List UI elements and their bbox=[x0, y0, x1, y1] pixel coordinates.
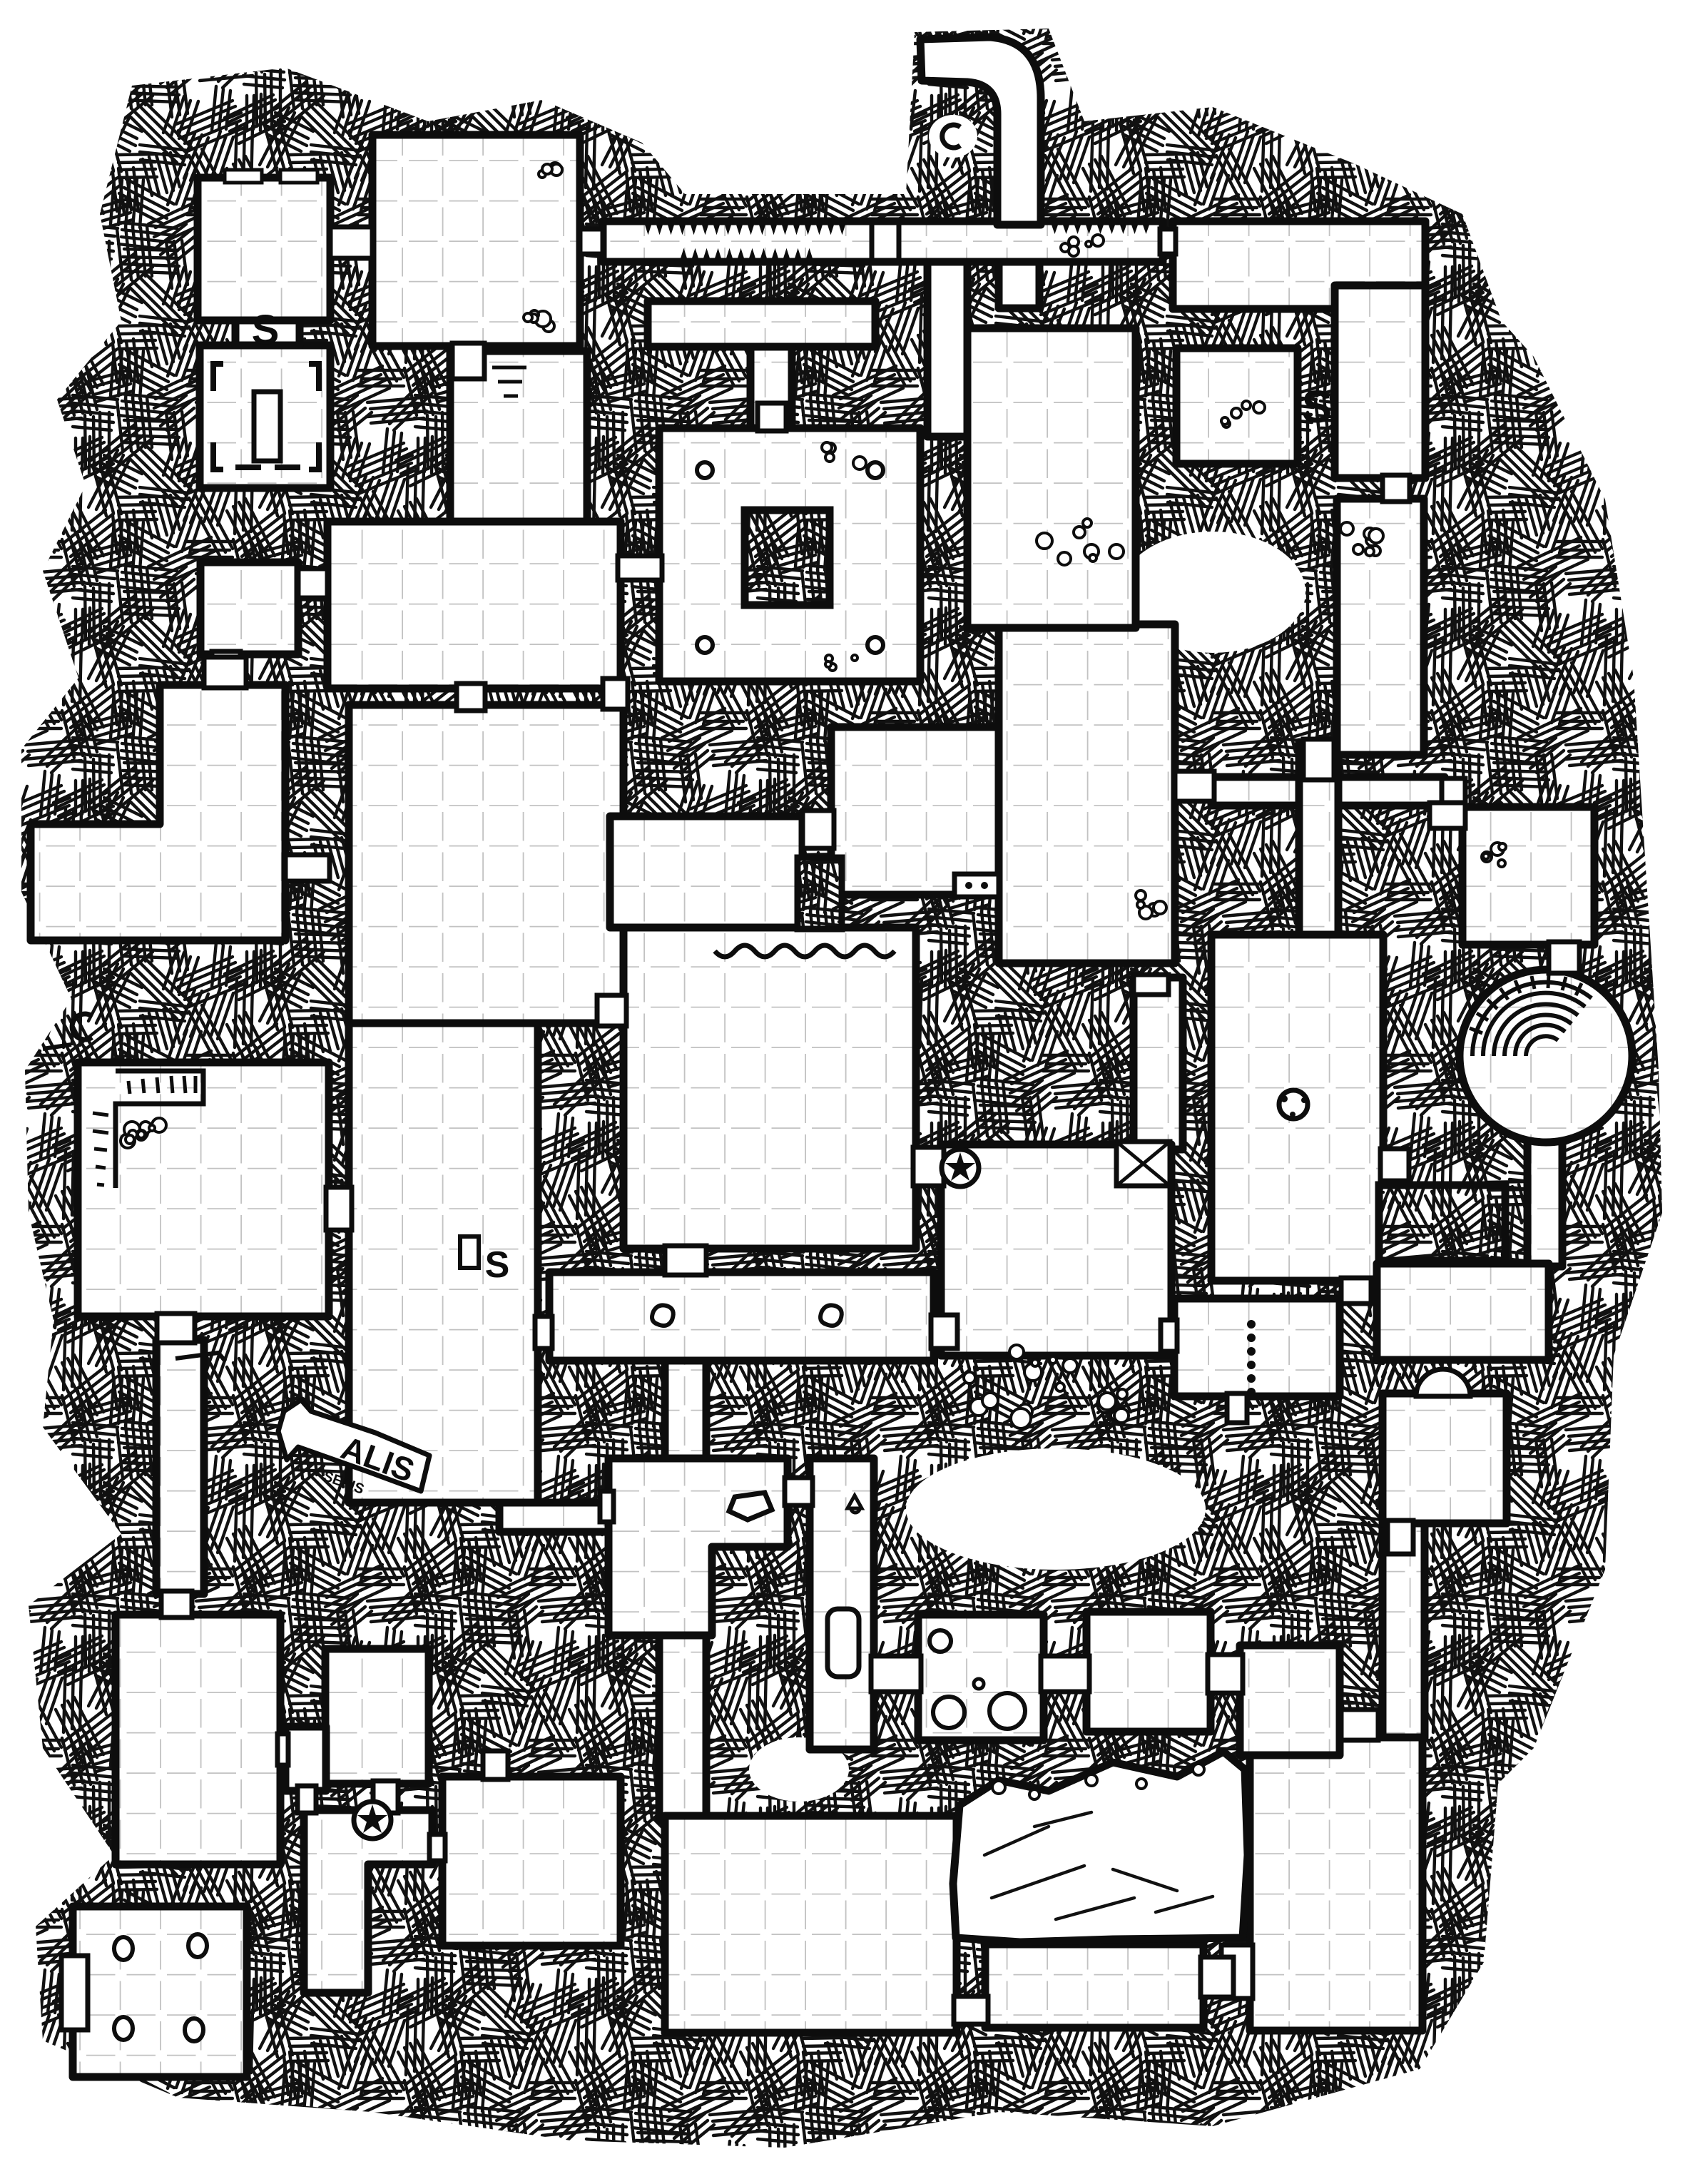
svg-text:S: S bbox=[252, 307, 280, 353]
svg-text:S: S bbox=[485, 1244, 510, 1286]
svg-text:S: S bbox=[1302, 381, 1333, 432]
